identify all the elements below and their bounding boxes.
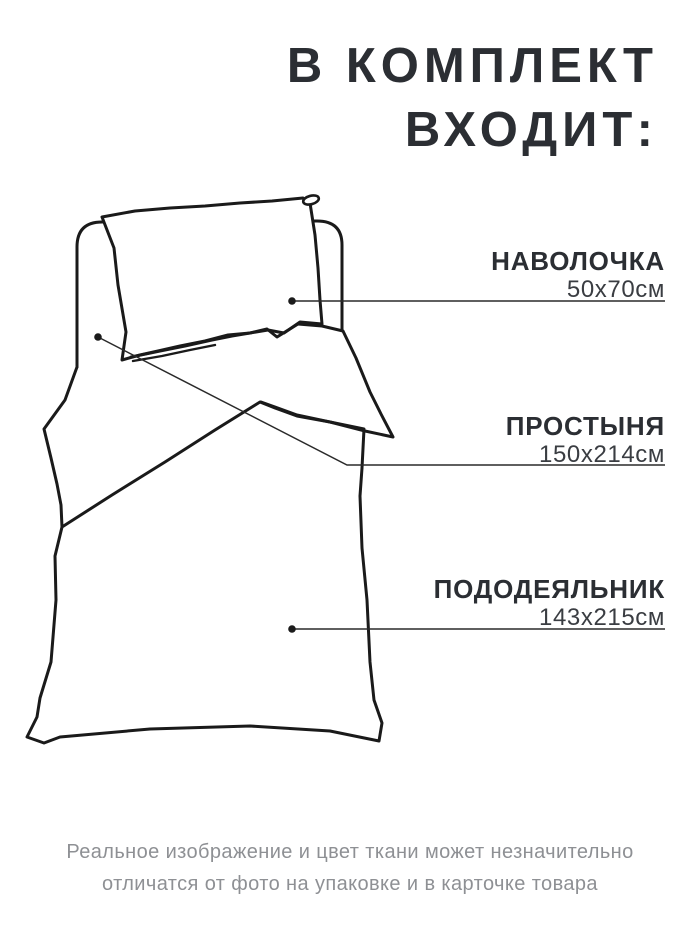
duvet-body — [27, 402, 382, 743]
duvet-callout-dot — [288, 625, 296, 633]
disclaimer-line-2: отличатся от фото на упаковке и в карточ… — [102, 873, 598, 895]
sheet-left-edge — [44, 367, 77, 527]
sheet-size: 150х214см — [506, 442, 665, 468]
callout-pillowcase: НАВОЛОЧКА 50х70см — [491, 247, 665, 303]
callout-sheet: ПРОСТЫНЯ 150х214см — [506, 412, 665, 468]
pillowcase-callout-dot — [288, 297, 296, 305]
sheet-label: ПРОСТЫНЯ — [506, 412, 665, 440]
product-infographic: В КОМПЛЕКТ ВХОДИТ: — [0, 0, 700, 933]
pillow-tag-loop — [302, 194, 320, 206]
pillow-outline — [102, 198, 322, 360]
duvet-cover-size: 143х215см — [434, 605, 665, 631]
duvet-cover-label: ПОДОДЕЯЛЬНИК — [434, 575, 665, 603]
pillowcase-label: НАВОЛОЧКА — [491, 247, 665, 275]
disclaimer-text: Реальное изображение и цвет ткани может … — [0, 836, 700, 900]
callout-duvet-cover: ПОДОДЕЯЛЬНИК 143х215см — [434, 575, 665, 631]
disclaimer-line-1: Реальное изображение и цвет ткани может … — [66, 841, 633, 863]
sheet-callout-dot — [94, 333, 102, 341]
pillowcase-size: 50х70см — [491, 277, 665, 303]
